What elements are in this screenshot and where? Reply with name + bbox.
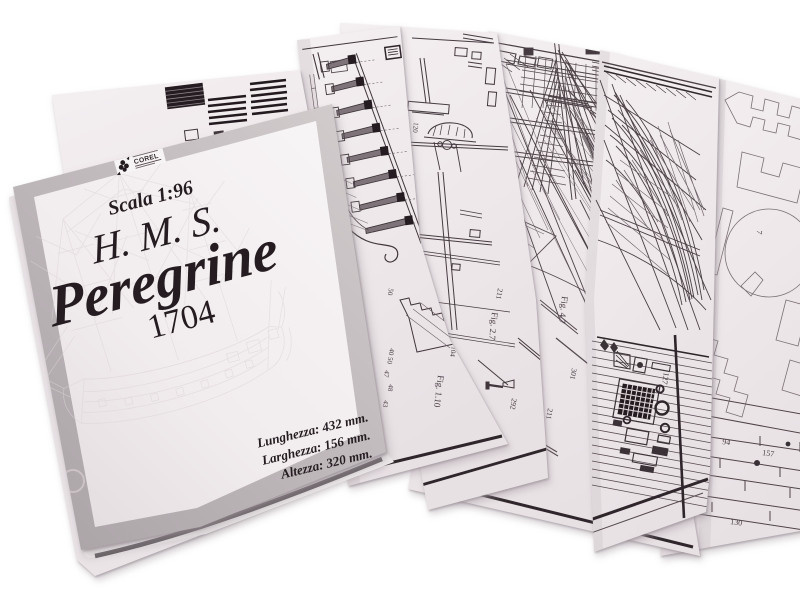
- svg-text:130: 130: [730, 517, 743, 528]
- svg-text:120: 120: [411, 122, 420, 134]
- svg-text:157: 157: [762, 448, 775, 459]
- svg-text:94: 94: [722, 437, 731, 447]
- svg-text:211: 211: [494, 288, 505, 301]
- svg-text:211: 211: [544, 408, 555, 421]
